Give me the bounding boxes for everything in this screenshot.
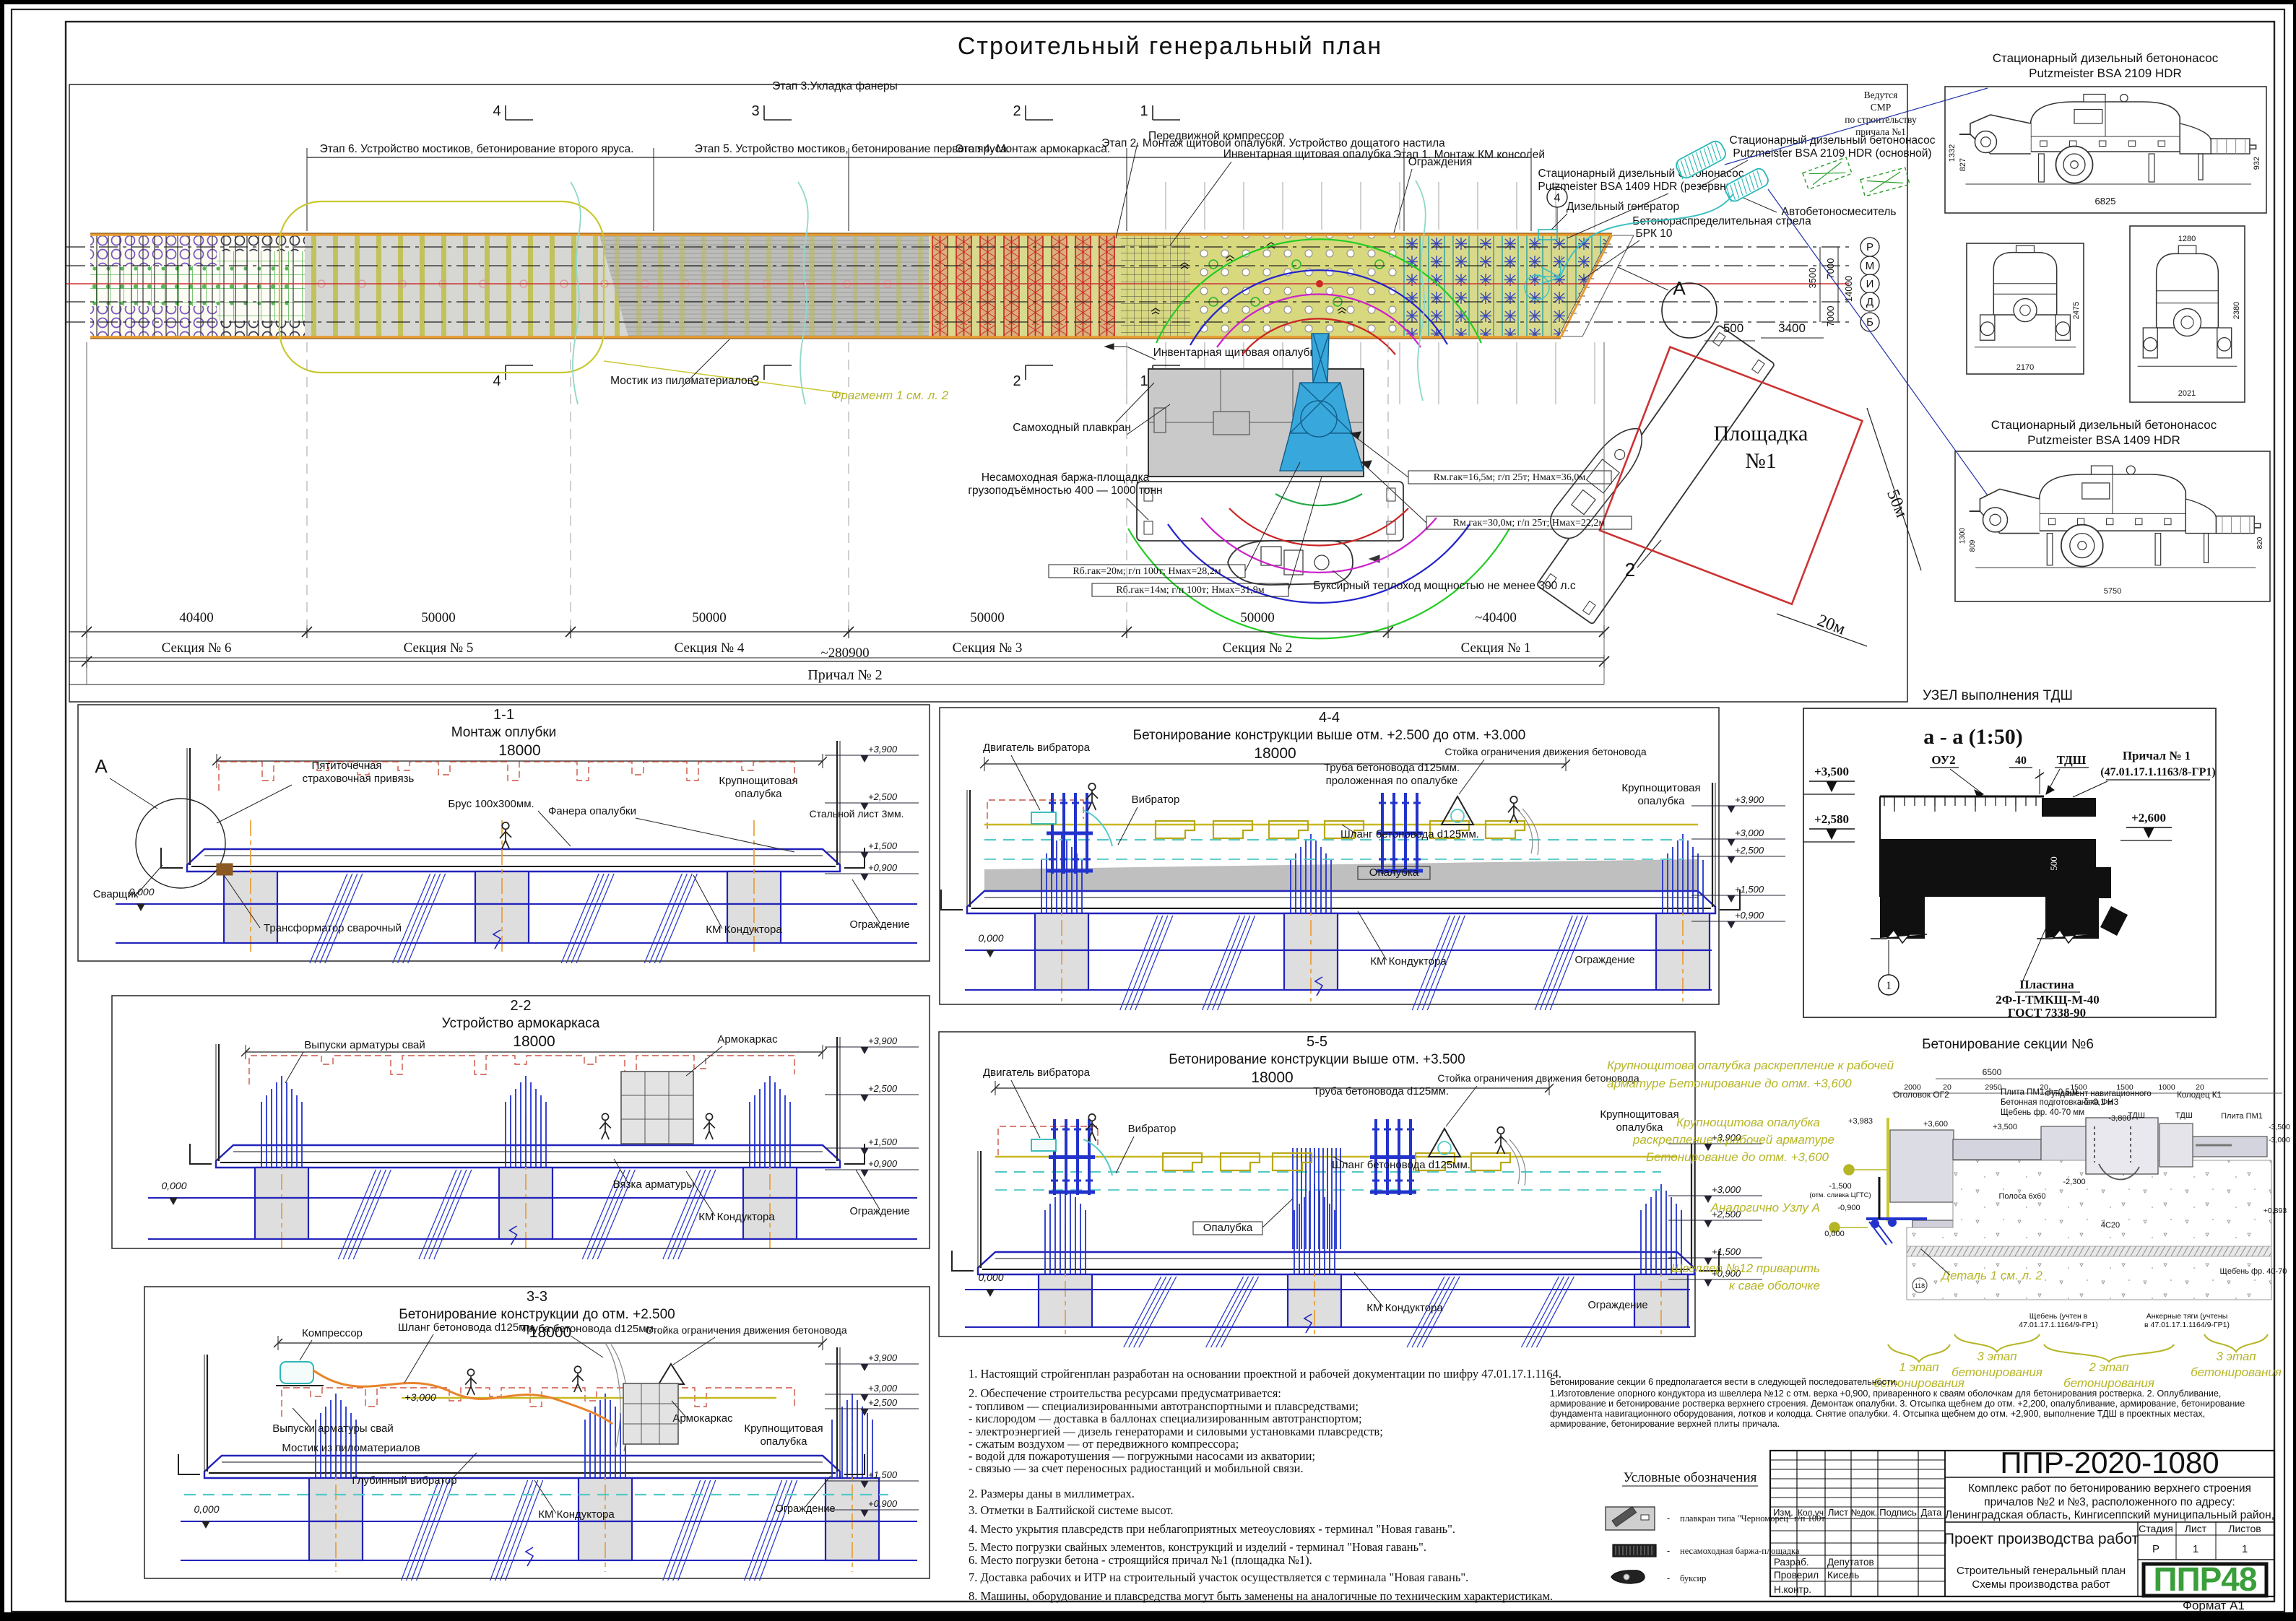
svg-text:Армокаркас: Армокаркас [717, 1033, 778, 1046]
svg-text:Rм.гак=16,5м; г/п 25т; Нмах=36: Rм.гак=16,5м; г/п 25т; Нмах=36,0м [1434, 472, 1586, 483]
svg-text:-3,000: -3,000 [2269, 1136, 2290, 1144]
svg-text:Глубинный вибратор: Глубинный вибратор [352, 1474, 456, 1487]
svg-text:фундамента навигационного обор: фундамента навигационного оборудования, … [1550, 1409, 2205, 1419]
svg-text:+3,900: +3,900 [868, 1352, 898, 1363]
svg-text:Труба бетоновода d125мм.: Труба бетоновода d125мм. [521, 1323, 657, 1335]
svg-text:Д: Д [1866, 296, 1873, 308]
svg-text:7. Доставка рабочих и ИТР на с: 7. Доставка рабочих и ИТР на строительны… [969, 1570, 1468, 1584]
svg-text:Разраб.: Разраб. [1774, 1557, 1809, 1568]
svg-text:Автобетоносмеситель: Автобетоносмеситель [1782, 206, 1897, 218]
svg-text:ППР48: ППР48 [2154, 1560, 2257, 1598]
svg-text:500: 500 [2048, 856, 2059, 871]
svg-text:Крупнощитовая: Крупнощитовая [1600, 1108, 1678, 1121]
svg-text:7000: 7000 [1825, 306, 1836, 327]
svg-text:ТДШ: ТДШ [2175, 1111, 2193, 1120]
svg-text:Крупнощитовая: Крупнощитовая [1621, 782, 1700, 794]
svg-text:2950: 2950 [1985, 1083, 2002, 1092]
svg-text:Пластина: Пластина [2019, 978, 2074, 991]
svg-text:Подпись: Подпись [1879, 1507, 1917, 1518]
svg-text:№1: №1 [1745, 449, 1777, 473]
svg-text:+3,000: +3,000 [1712, 1184, 1741, 1195]
svg-text:1: 1 [2193, 1543, 2198, 1555]
svg-text:- связью — за счет переносных: - связью — за счет переносных радиостанц… [969, 1461, 1304, 1475]
svg-text:2-2: 2-2 [511, 998, 532, 1014]
svg-text:Щебень (учтен в: Щебень (учтен в [2029, 1312, 2088, 1321]
svg-text:4: 4 [493, 373, 501, 389]
svg-text:ОУ2: ОУ2 [1931, 753, 1955, 767]
svg-text:опалубка: опалубка [1616, 1121, 1663, 1134]
svg-text:Ленинградская область, Кингисе: Ленинградская область, Кингисеппский мун… [1945, 1509, 2274, 1521]
svg-text:Секция № 1: Секция № 1 [1461, 640, 1531, 656]
svg-text:1: 1 [1140, 373, 1148, 389]
svg-text:армирование и бетонирование ро: армирование и бетонирование ростверка ве… [1550, 1399, 2245, 1409]
svg-text:40400: 40400 [179, 610, 214, 625]
svg-text:1-1: 1-1 [493, 707, 514, 723]
svg-text:5-5: 5-5 [1307, 1034, 1327, 1050]
svg-text:СМР: СМР [1871, 102, 1892, 113]
svg-text:1280: 1280 [2178, 235, 2196, 243]
svg-text:2475: 2475 [2072, 302, 2081, 319]
svg-text:+1,500: +1,500 [868, 1469, 898, 1480]
svg-text:~280900: ~280900 [820, 646, 869, 661]
svg-text:Несамоходная баржа-площадка: Несамоходная баржа-площадка [982, 471, 1150, 484]
svg-text:Секция № 5: Секция № 5 [404, 640, 474, 656]
svg-text:Двигатель вибратора: Двигатель вибратора [983, 742, 1091, 754]
svg-text:+3,900: +3,900 [1735, 794, 1764, 805]
svg-text:1: 1 [1886, 980, 1892, 992]
svg-text:3500: 3500 [1807, 268, 1818, 289]
svg-text:Стойка ограничения движения бе: Стойка ограничения движения бетоновода [645, 1324, 846, 1336]
svg-text:Инвентарная щитовая опалубка: Инвентарная щитовая опалубка [1153, 347, 1322, 359]
svg-text:(отм. сливка ЦГТС): (отм. сливка ЦГТС) [1809, 1191, 1871, 1199]
svg-text:Дизельный генератор: Дизельный генератор [1567, 201, 1679, 213]
svg-text:Брус 100x300мм.: Брус 100x300мм. [448, 798, 534, 810]
svg-text:18000: 18000 [513, 1033, 555, 1050]
svg-text:бетонирования: бетонирования [1951, 1365, 2042, 1379]
svg-text:Опалубка: Опалубка [1369, 866, 1419, 879]
svg-text:Лист: Лист [1828, 1507, 1848, 1518]
svg-text:4С20: 4С20 [2101, 1221, 2120, 1230]
svg-text:Шланг бетоновода d125мм.: Шланг бетоновода d125мм. [398, 1321, 537, 1334]
svg-text:Полоса 6х60: Полоса 6х60 [1999, 1192, 2046, 1201]
svg-text:3 этап: 3 этап [2216, 1350, 2256, 1363]
svg-text:+2,500: +2,500 [1735, 845, 1764, 856]
svg-text:буксир: буксир [1680, 1573, 1706, 1583]
svg-text:Putzmeister BSA 2109 HDR: Putzmeister BSA 2109 HDR [2029, 66, 2182, 80]
svg-text:Формат А1: Формат А1 [2183, 1599, 2245, 1612]
svg-text:Монтаж оплубки: Монтаж оплубки [451, 725, 557, 740]
svg-text:М: М [1866, 260, 1875, 272]
svg-text:3-3: 3-3 [527, 1289, 547, 1305]
svg-text:Причал № 2: Причал № 2 [807, 667, 882, 683]
svg-text:4: 4 [1554, 192, 1561, 204]
svg-text:Стационарный дизельный бетонон: Стационарный дизельный бетононасос [1991, 418, 2217, 432]
svg-text:18000: 18000 [498, 742, 540, 759]
svg-text:Швеллер №12 приварить: Швеллер №12 приварить [1671, 1261, 1820, 1275]
svg-text:+0,900: +0,900 [868, 862, 898, 873]
svg-text:арматуре Бетонирование до отм.: арматуре Бетонирование до отм. +3,600 [1607, 1077, 1852, 1090]
svg-text:Труба бетоновода d125мм.: Труба бетоновода d125мм. [1324, 762, 1460, 774]
svg-text:3 этап: 3 этап [1977, 1350, 2017, 1363]
svg-text:932: 932 [2253, 157, 2261, 170]
svg-text:+3,500: +3,500 [1814, 765, 1849, 778]
svg-text:ППР-2020-1080: ППР-2020-1080 [2000, 1446, 2219, 1479]
svg-text:40: 40 [2015, 755, 2027, 767]
svg-text:раскрепление к рабочей арматур: раскрепление к рабочей арматуре [1632, 1133, 1834, 1147]
svg-text:Ограждение: Ограждение [775, 1503, 835, 1515]
svg-text:-0,900: -0,900 [1837, 1204, 1860, 1212]
svg-text:+0,893: +0,893 [2263, 1207, 2287, 1215]
svg-text:Этап 4. Монтаж армокаркаса.: Этап 4. Монтаж армокаркаса. [956, 143, 1110, 155]
svg-text:грузоподъёмностью 400 — 1000 т: грузоподъёмностью 400 — 1000 тонн [968, 484, 1162, 497]
svg-text:Фундамент навигационного: Фундамент навигационного [2045, 1090, 2152, 1098]
svg-text:Мостик из пиломатериалов: Мостик из пиломатериалов [610, 375, 753, 387]
svg-text:+3,000: +3,000 [868, 1383, 898, 1394]
svg-text:6825: 6825 [2095, 196, 2116, 207]
svg-text:50000: 50000 [970, 610, 1005, 625]
svg-text:4. Место укрытия плавсредств п: 4. Место укрытия плавсредств при неблаго… [969, 1522, 1455, 1536]
svg-text:Бетонирование конструкции выше: Бетонирование конструкции выше отм. +3.5… [1169, 1052, 1465, 1067]
svg-text:+1,500: +1,500 [1712, 1246, 1741, 1257]
svg-text:Крупнощитовая: Крупнощитовая [719, 775, 797, 787]
svg-text:0,000: 0,000 [978, 932, 1003, 944]
svg-text:+1,500: +1,500 [868, 1137, 898, 1147]
svg-text:Плита ПМ1: Плита ПМ1 [2221, 1112, 2263, 1121]
svg-text:Мостик из пиломатериалов: Мостик из пиломатериалов [282, 1442, 420, 1454]
svg-text:Стационарный дизельный бетонон: Стационарный дизельный бетононасос [1538, 168, 1744, 180]
svg-text:Комплекс работ по бетонировани: Комплекс работ по бетонированию верхнего… [1968, 1482, 2251, 1495]
svg-text:+1,500: +1,500 [868, 840, 898, 851]
svg-text:2380: 2380 [2232, 302, 2241, 319]
svg-text:5. Место погрузки свайных эле: 5. Место погрузки свайных элементов, кон… [969, 1540, 1426, 1554]
svg-text:6. Место погрузки бетона - стр: 6. Место погрузки бетона - строящийся пр… [969, 1553, 1312, 1567]
svg-text:+0,900: +0,900 [868, 1498, 898, 1509]
svg-text:ТДШ: ТДШ [2057, 753, 2087, 767]
svg-text:КМ Кондуктора: КМ Кондуктора [1370, 955, 1447, 968]
svg-text:1000: 1000 [2158, 1083, 2175, 1092]
svg-text:Вибратор: Вибратор [1132, 794, 1180, 806]
svg-text:Условные обозначения: Условные обозначения [1624, 1470, 1757, 1485]
svg-text:Ограждение: Ограждение [1587, 1300, 1647, 1311]
svg-text:2: 2 [1013, 373, 1021, 389]
svg-text:Трансформатор сварочный: Трансформатор сварочный [264, 922, 402, 934]
svg-text:Кол.уч: Кол.уч [1798, 1508, 1824, 1518]
svg-text:+3,983: +3,983 [1848, 1117, 1873, 1126]
svg-text:в 47.01.17.1.1164/9-ГР1): в 47.01.17.1.1164/9-ГР1) [2144, 1321, 2230, 1329]
svg-text:проложенная по опалубке: проложенная по опалубке [1326, 775, 1458, 787]
svg-text:Р: Р [1866, 241, 1873, 253]
svg-text:Секция № 6: Секция № 6 [162, 640, 232, 656]
svg-text:Двигатель вибратора: Двигатель вибратора [983, 1066, 1091, 1079]
svg-text:2Ф-I-ТМКЩ-М-40: 2Ф-I-ТМКЩ-М-40 [1996, 993, 2100, 1007]
svg-text:Стационарный дизельный бетонон: Стационарный дизельный бетононасос [1730, 134, 1936, 147]
svg-text:Проект производства работ: Проект производства работ [1944, 1531, 2139, 1547]
svg-text:50000: 50000 [692, 610, 727, 625]
svg-text:Кисель: Кисель [1827, 1570, 1859, 1581]
svg-text:+2,600: +2,600 [2131, 811, 2166, 825]
svg-text:Опалубка: Опалубка [1203, 1222, 1253, 1234]
svg-text:a - a (1:50): a - a (1:50) [1923, 725, 2022, 749]
svg-text:Схемы производства работ: Схемы производства работ [1972, 1578, 2110, 1591]
svg-text:827: 827 [1959, 158, 1967, 171]
svg-text:Самоходный плавкран: Самоходный плавкран [1013, 422, 1131, 434]
svg-text:500: 500 [1723, 321, 1743, 335]
svg-text:0,000: 0,000 [978, 1272, 1003, 1283]
svg-text:Ограждения: Ограждения [1408, 156, 1473, 168]
svg-text:Площадка: Площадка [1714, 422, 1808, 446]
svg-text:Изм.: Изм. [1773, 1507, 1793, 1518]
svg-text:Сварщик: Сварщик [93, 888, 139, 900]
svg-text:-3,500: -3,500 [2269, 1123, 2290, 1131]
svg-text:8. Машины, оборудование и плав: 8. Машины, оборудование и плавсредства м… [969, 1589, 1553, 1603]
svg-text:Ограждение: Ограждение [1574, 955, 1634, 966]
svg-text:118: 118 [1915, 1282, 1925, 1290]
svg-text:0,000: 0,000 [161, 1180, 186, 1191]
svg-text:Стойка ограничения движения бе: Стойка ограничения движения бетоновода [1444, 746, 1646, 757]
svg-text:+3,900: +3,900 [868, 1035, 898, 1046]
svg-text:+0,900: +0,900 [868, 1158, 898, 1169]
svg-text:знака ФНЗ: знака ФНЗ [2078, 1098, 2119, 1107]
svg-text:2: 2 [1013, 103, 1021, 119]
svg-text:Щебень фр. 40-70 мм: Щебень фр. 40-70 мм [2001, 1108, 2084, 1117]
svg-text:Бетонирование до отм. +3,600: Бетонирование до отм. +3,600 [1646, 1150, 1829, 1164]
svg-text:армирование, бетонирование вер: армирование, бетонирование верхней плиты… [1550, 1419, 1780, 1429]
svg-text:14000: 14000 [1843, 276, 1854, 302]
svg-text:Пятиточечная: Пятиточечная [311, 760, 381, 772]
svg-text:18000: 18000 [1251, 1069, 1293, 1086]
svg-text:КМ Кондуктора: КМ Кондуктора [538, 1508, 615, 1521]
svg-text:2 этап: 2 этап [2088, 1360, 2129, 1374]
svg-text:Ограждение: Ограждение [849, 919, 909, 931]
svg-text:+3,900: +3,900 [868, 744, 898, 755]
svg-text:Буксирный теплоход мощностью н: Буксирный теплоход мощностью не менее 30… [1313, 580, 1575, 592]
svg-text:Шланг бетоновода d125мм.: Шланг бетоновода d125мм. [1340, 828, 1479, 840]
svg-text:Вязка арматуры: Вязка арматуры [613, 1178, 695, 1191]
svg-text:-2,300: -2,300 [2063, 1178, 2085, 1186]
svg-text:Секция № 4: Секция № 4 [675, 640, 745, 656]
svg-text:Фанера опалубки: Фанера опалубки [548, 805, 636, 817]
svg-text:А: А [1673, 277, 1686, 299]
svg-text:-: - [1667, 1573, 1670, 1583]
svg-text:к свае оболочке: к свае оболочке [1729, 1279, 1820, 1292]
svg-text:47.01.17.1.1164/9-ГР1): 47.01.17.1.1164/9-ГР1) [2019, 1321, 2097, 1329]
svg-text:5750: 5750 [2104, 587, 2121, 596]
svg-text:+2,500: +2,500 [868, 1397, 898, 1408]
svg-text:ГОСТ 7338-90: ГОСТ 7338-90 [2008, 1006, 2086, 1020]
svg-text:Колодец К1: Колодец К1 [2177, 1091, 2222, 1100]
svg-text:И: И [1866, 278, 1874, 290]
svg-text:Бетонирование конструкции до о: Бетонирование конструкции до отм. +2.500 [399, 1307, 675, 1322]
svg-text:1332: 1332 [1948, 144, 1957, 162]
svg-text:Аналогично Узлу А: Аналогично Узлу А [1710, 1201, 1820, 1214]
svg-text:-1,500: -1,500 [1829, 1182, 1851, 1191]
svg-text:Депутатов: Депутатов [1827, 1557, 1874, 1568]
svg-text:+2,500: +2,500 [868, 791, 898, 802]
svg-text:50000: 50000 [421, 610, 456, 625]
svg-text:А: А [95, 755, 108, 777]
svg-text:БРК 10: БРК 10 [1635, 227, 1672, 240]
svg-text:опалубка: опалубка [1637, 795, 1685, 807]
svg-text:Вибратор: Вибратор [1128, 1123, 1177, 1135]
svg-text:бетонирования: бетонирования [2191, 1365, 2282, 1379]
svg-text:1300: 1300 [1959, 527, 1967, 544]
svg-text:причалов №2 и №3, расположенно: причалов №2 и №3, расположенного по адре… [1984, 1496, 2235, 1508]
svg-text:4-4: 4-4 [1319, 710, 1340, 726]
svg-text:Шланг бетоновода d125мм.: Шланг бетоновода d125мм. [1332, 1159, 1470, 1171]
svg-text:Putzmeister BSA 1409 HDR (резе: Putzmeister BSA 1409 HDR (резервный) [1538, 181, 1743, 193]
svg-text:Стальной лист 3мм.: Стальной лист 3мм. [809, 808, 904, 820]
svg-text:КМ Кондуктора: КМ Кондуктора [706, 924, 782, 936]
svg-text:1: 1 [1140, 103, 1148, 119]
svg-text:Инвентарная щитовая опалубка: Инвентарная щитовая опалубка [1223, 148, 1392, 160]
svg-text:Дата: Дата [1921, 1507, 1943, 1518]
svg-text:+1,500: +1,500 [1735, 884, 1764, 895]
svg-text:(47.01.17.1.1163/8-ГР1): (47.01.17.1.1163/8-ГР1) [2100, 766, 2216, 778]
svg-text:КМ Кондуктора: КМ Кондуктора [698, 1211, 775, 1223]
svg-text:2. Обеспечение строительства р: 2. Обеспечение строительства ресурсами п… [969, 1386, 1281, 1400]
svg-text:Крупнощитова опалубка: Крупнощитова опалубка [1676, 1116, 1820, 1129]
svg-text:+2,500: +2,500 [868, 1083, 898, 1094]
svg-text:Выпуски арматуры свай: Выпуски арматуры свай [272, 1422, 394, 1435]
svg-text:~40400: ~40400 [1475, 610, 1517, 625]
svg-text:-: - [1667, 1545, 1670, 1556]
svg-text:Армокаркас: Армокаркас [672, 1412, 733, 1425]
svg-text:Стационарный дизельный бетонон: Стационарный дизельный бетононасос [1993, 51, 2219, 65]
svg-text:0,000: 0,000 [194, 1503, 219, 1515]
svg-text:Этап 3.Укладка фанеры: Этап 3.Укладка фанеры [772, 80, 898, 92]
svg-text:Ведутся: Ведутся [1864, 90, 1898, 100]
svg-text:№док.: №док. [1851, 1508, 1878, 1518]
svg-text:Ограждение: Ограждение [849, 1206, 909, 1217]
svg-text:+3,000: +3,000 [1735, 827, 1764, 838]
svg-text:Стадия: Стадия [2139, 1523, 2173, 1534]
svg-text:Этап 6. Устройство мостиков, б: Этап 6. Устройство мостиков, бетонирован… [320, 143, 634, 155]
svg-text:820: 820 [2256, 536, 2264, 549]
svg-text:Бетонирование конструкции выше: Бетонирование конструкции выше отм. +2.5… [1133, 728, 1526, 743]
svg-text:ТДШ: ТДШ [2128, 1111, 2145, 1120]
svg-text:Н.контр.: Н.контр. [1774, 1584, 1811, 1595]
svg-text:Секция № 2: Секция № 2 [1223, 640, 1293, 656]
svg-text:Строительный генеральный план: Строительный генеральный план [958, 32, 1382, 60]
svg-text:страховочная привязь: страховочная привязь [303, 773, 415, 785]
svg-text:Компрессор: Компрессор [302, 1327, 363, 1339]
svg-text:Оголовок ОГ2: Оголовок ОГ2 [1893, 1090, 1949, 1100]
svg-text:Putzmeister BSA 1409 HDR: Putzmeister BSA 1409 HDR [2027, 433, 2180, 447]
svg-text:0,000: 0,000 [1824, 1230, 1845, 1238]
svg-text:Крупнощитова опалубка раскрепл: Крупнощитова опалубка раскрепление к раб… [1607, 1059, 1894, 1072]
svg-text:2: 2 [1625, 559, 1635, 581]
svg-text:1: 1 [2242, 1543, 2248, 1555]
svg-text:несамоходная баржа-площадка: несамоходная баржа-площадка [1680, 1546, 1800, 1556]
svg-text:УЗЕЛ выполнения ТДШ: УЗЕЛ выполнения ТДШ [1923, 688, 2073, 703]
svg-text:Анкерные тяги (учтены: Анкерные тяги (учтены [2146, 1312, 2228, 1321]
svg-text:2. Размеры даны в миллиметрах.: 2. Размеры даны в миллиметрах. [969, 1487, 1135, 1500]
svg-text:Rб.гак=14м; г/п 100т; Нмах=31,: Rб.гак=14м; г/п 100т; Нмах=31,9м [1116, 585, 1264, 596]
svg-text:3: 3 [751, 103, 759, 119]
svg-text:18000: 18000 [1254, 745, 1296, 762]
svg-text:Причал № 1: Причал № 1 [2123, 749, 2191, 762]
svg-text:Проверил: Проверил [1774, 1570, 1819, 1581]
svg-text:КМ Кондуктора: КМ Кондуктора [1366, 1302, 1443, 1314]
svg-text:+3,500: +3,500 [1993, 1123, 2017, 1131]
svg-text:2170: 2170 [2016, 363, 2034, 372]
svg-text:Лист: Лист [2185, 1523, 2207, 1534]
svg-text:опалубка: опалубка [735, 788, 782, 800]
svg-text:+0,900: +0,900 [1735, 910, 1764, 921]
svg-text:Крупнощитовая: Крупнощитовая [744, 1422, 823, 1435]
svg-text:1. Настоящий стройгенплан разр: 1. Настоящий стройгенплан разработан на … [969, 1367, 1561, 1381]
svg-text:Rб.гак=20м; г/п 100т; Нмах=28,: Rб.гак=20м; г/п 100т; Нмах=28,2м [1073, 566, 1221, 577]
svg-text:Бетонирование секции 6 предпол: Бетонирование секции 6 предполагается ве… [1550, 1377, 1898, 1387]
svg-text:3400: 3400 [1778, 321, 1806, 335]
svg-text:- кислородом — доставка в балл: - кислородом — доставка в баллонах специ… [969, 1412, 1362, 1425]
svg-text:Секция № 3: Секция № 3 [953, 640, 1023, 656]
svg-text:809: 809 [1969, 539, 1977, 552]
svg-text:2021: 2021 [2178, 389, 2196, 398]
svg-text:+3,000: +3,000 [404, 1391, 436, 1403]
svg-text:Устройство армокаркаса: Устройство армокаркаса [442, 1016, 600, 1031]
svg-text:50000: 50000 [1240, 610, 1275, 625]
svg-text:3. Отметки в Балтийской систе: 3. Отметки в Балтийской системе высот. [969, 1503, 1173, 1517]
svg-text:Строительный генеральный план: Строительный генеральный план [1957, 1565, 2126, 1577]
svg-text:опалубка: опалубка [760, 1435, 807, 1448]
svg-text:Р: Р [2152, 1543, 2159, 1555]
svg-text:Труба бетоновода d125мм.: Труба бетоновода d125мм. [1313, 1085, 1449, 1098]
svg-text:6500: 6500 [1983, 1067, 2002, 1077]
svg-text:Листов: Листов [2228, 1523, 2261, 1534]
svg-text:Передвижной компрессор: Передвижной компрессор [1148, 130, 1284, 142]
svg-text:Выпуски арматуры свай: Выпуски арматуры свай [304, 1039, 425, 1051]
svg-text:Бетонирование секции №6: Бетонирование секции №6 [1922, 1037, 2094, 1052]
svg-text:Деталь 1 см. л. 2: Деталь 1 см. л. 2 [1940, 1269, 2043, 1282]
svg-text:1 этап: 1 этап [1899, 1360, 1939, 1374]
svg-text:-: - [1667, 1513, 1670, 1524]
svg-text:Щебень фр. 40-70: Щебень фр. 40-70 [2220, 1267, 2287, 1276]
svg-text:+2,580: +2,580 [1814, 812, 1849, 826]
svg-text:Rм.гак=30,0м; г/п 25т; Нмах=22: Rм.гак=30,0м; г/п 25т; Нмах=22,2м [1453, 518, 1606, 529]
svg-text:4: 4 [493, 103, 501, 119]
svg-text:Б: Б [1866, 316, 1873, 329]
svg-text:+3,600: +3,600 [1923, 1120, 1948, 1129]
svg-text:1.Изготовление опорного кондук: 1.Изготовление опорного кондуктора из шв… [1550, 1389, 2221, 1399]
